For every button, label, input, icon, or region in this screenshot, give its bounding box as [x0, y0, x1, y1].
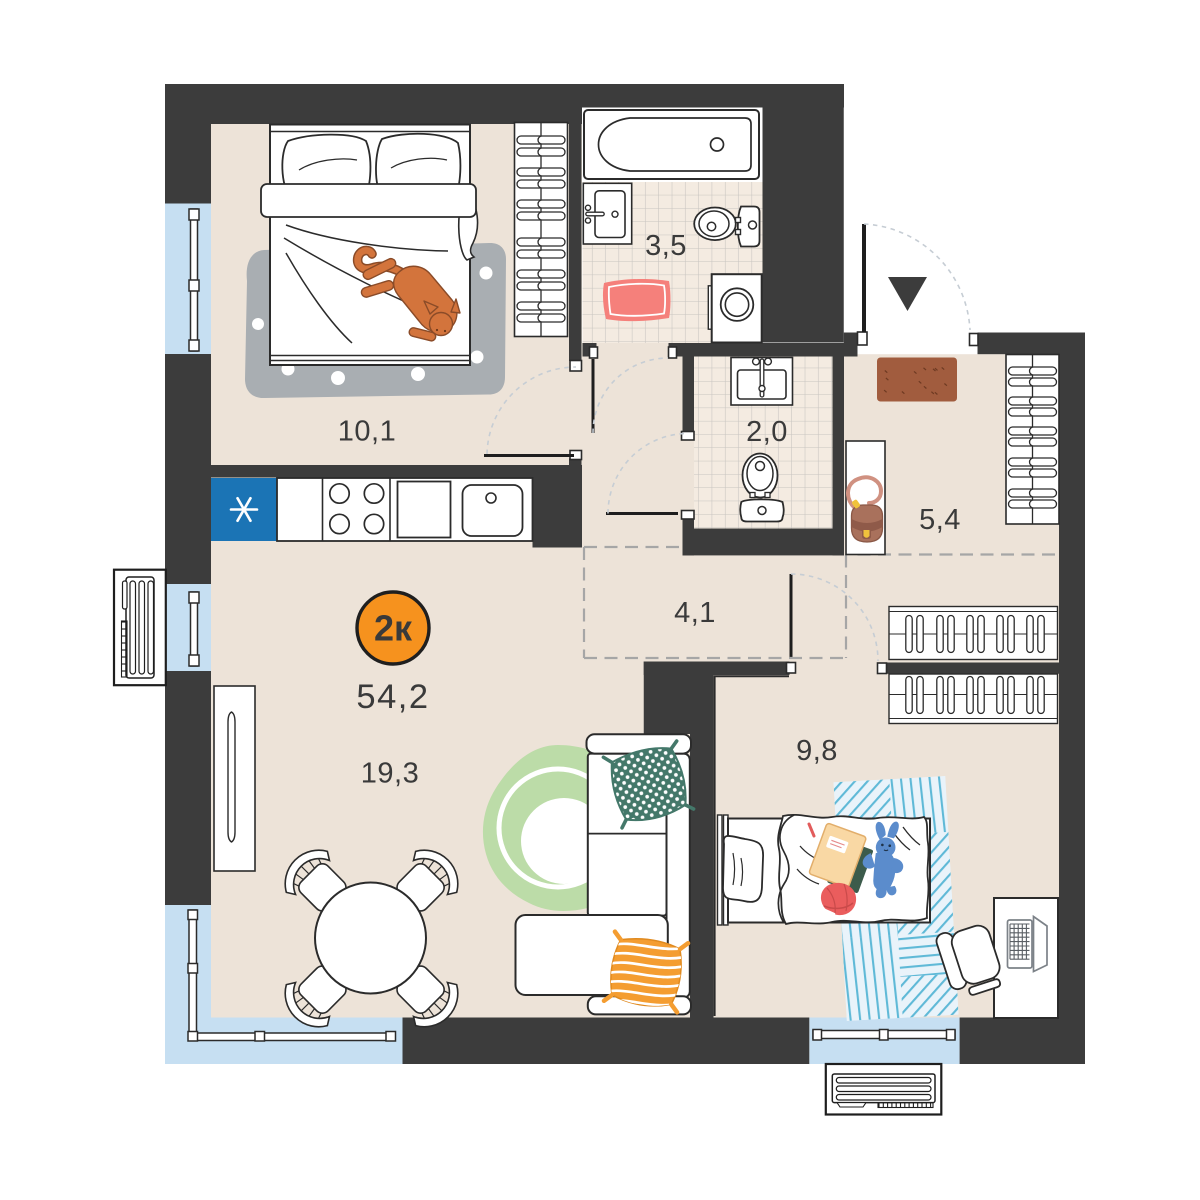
svg-text:3,5: 3,5 — [645, 230, 687, 262]
svg-text:10,1: 10,1 — [338, 416, 396, 448]
svg-text:9,8: 9,8 — [796, 735, 838, 767]
svg-text:5,4: 5,4 — [919, 504, 961, 536]
svg-text:4,1: 4,1 — [674, 597, 716, 629]
svg-text:19,3: 19,3 — [361, 758, 419, 790]
svg-text:54,2: 54,2 — [356, 678, 429, 716]
svg-text:2,0: 2,0 — [746, 416, 788, 448]
svg-text:2к: 2к — [374, 608, 413, 649]
